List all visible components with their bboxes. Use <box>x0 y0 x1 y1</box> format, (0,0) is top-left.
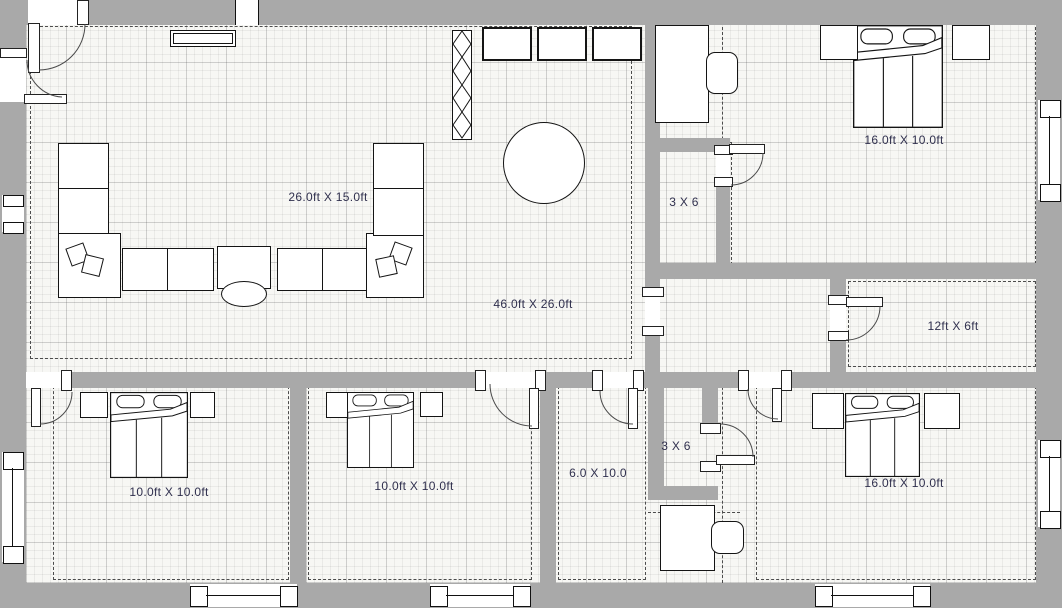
wall-shelf-inner <box>173 33 233 44</box>
door-opening-room-middle <box>597 372 638 388</box>
desk-top-right <box>655 25 709 123</box>
nightstand <box>190 392 215 418</box>
window-glass <box>1049 116 1050 184</box>
door-leaf-entry-top <box>28 23 40 73</box>
sofa-module <box>58 188 109 236</box>
wall-bath-bottom-south <box>648 486 718 500</box>
door-post <box>642 287 664 297</box>
sofa-corner-right <box>366 233 424 298</box>
window-glass <box>831 595 913 596</box>
wall-bath-bottom-east <box>702 388 718 425</box>
cabinet <box>537 27 587 61</box>
bed-bottom-middle <box>347 392 414 468</box>
window-post <box>190 586 208 607</box>
nightstand <box>924 393 960 429</box>
window-post <box>1040 100 1061 118</box>
cabinet <box>592 27 642 61</box>
room-label-bedroom-bl: 10.0ft X 10.0ft <box>129 485 208 499</box>
nightstand <box>952 25 990 60</box>
desk-bottom <box>660 505 715 571</box>
bed-top-right <box>853 25 943 128</box>
window-post <box>3 546 24 564</box>
door-leaf-bath-top <box>729 144 765 154</box>
nightstand <box>420 392 443 417</box>
wall-top <box>0 0 1062 25</box>
sofa-pillow <box>375 255 398 278</box>
door-opening-bath-top <box>716 152 730 180</box>
window-top-wall <box>235 0 259 25</box>
room-label-bedroom-br: 16.0ft X 10.0ft <box>864 476 943 490</box>
room-label-living: 46.0ft X 26.0ft <box>493 297 572 311</box>
door-post <box>738 370 749 391</box>
door-opening-bedroom-bm <box>480 372 540 388</box>
window-post <box>1040 184 1061 202</box>
nightstand <box>820 25 858 60</box>
door-opening-entry-left <box>0 57 26 102</box>
window-glass <box>1049 456 1050 511</box>
bed-bottom-left <box>110 392 188 478</box>
floor-plan: 46.0ft X 26.0ft 26.0ft X 15.0ft 16.0ft X… <box>0 0 1062 608</box>
coffee-table <box>221 281 267 307</box>
door-post <box>0 48 27 58</box>
door-leaf-room-middle <box>628 388 638 429</box>
window-post <box>913 586 931 607</box>
window-post <box>430 586 448 607</box>
window-post <box>1040 511 1061 529</box>
room-label-sofa-area: 26.0ft X 15.0ft <box>288 190 367 204</box>
window-post <box>1040 440 1061 458</box>
sofa-module <box>58 143 109 191</box>
door-post <box>592 370 603 391</box>
window-post <box>3 222 24 234</box>
sofa-corner-left <box>58 233 121 298</box>
window-post <box>280 586 298 607</box>
chair-bottom <box>711 521 744 554</box>
wall-bedrooms-divider-2 <box>540 372 556 583</box>
room-label-room-middle: 6.0 X 10.0 <box>569 466 627 480</box>
door-leaf-entry-left <box>24 94 67 104</box>
room-label-bath-top: 3 X 6 <box>669 195 699 209</box>
door-leaf-bedroom-bm <box>529 388 539 429</box>
door-post <box>642 326 664 336</box>
door-leaf-bath-bottom <box>716 455 755 465</box>
door-opening-room-right <box>830 302 846 333</box>
room-label-bath-bottom: 3 X 6 <box>661 439 691 453</box>
cabinet <box>482 27 532 61</box>
window-glass <box>12 468 13 546</box>
room-label-bedroom-tr: 16.0ft X 10.0ft <box>864 133 943 147</box>
chair-top-right <box>706 52 738 94</box>
round-table <box>503 122 585 204</box>
door-post <box>828 331 849 341</box>
door-post <box>781 370 792 391</box>
door-post <box>77 0 89 25</box>
window-post <box>3 452 24 470</box>
wall-hall-top <box>645 263 1036 279</box>
wall-bath-top-east <box>716 180 730 264</box>
nightstand <box>80 392 108 418</box>
sofa-pillow <box>81 254 104 277</box>
room-label-room-right: 12ft X 6ft <box>927 319 978 333</box>
door-leaf-bedroom-bl <box>31 388 41 427</box>
sofa-module <box>277 248 324 291</box>
sofa-module <box>322 248 369 291</box>
bed-bottom-right <box>845 393 920 477</box>
door-leaf-room-right <box>846 297 883 307</box>
nightstand <box>812 393 844 429</box>
window-glass <box>206 595 280 596</box>
sofa-module <box>122 248 169 291</box>
window-post <box>513 586 531 607</box>
window-post <box>3 195 24 207</box>
door-opening-hall <box>645 293 660 328</box>
sofa-module <box>373 188 424 236</box>
sofa-module <box>373 143 424 191</box>
door-post <box>714 177 733 187</box>
wall-shelf <box>170 30 236 47</box>
door-post <box>61 370 72 391</box>
room-label-bedroom-bm: 10.0ft X 10.0ft <box>374 479 453 493</box>
door-leaf-bedroom-br <box>772 388 782 422</box>
wall-bedrooms-divider-1 <box>290 372 306 583</box>
window-glass <box>446 595 513 596</box>
window-post <box>815 586 833 607</box>
sofa-module <box>167 248 214 291</box>
door-post <box>475 370 486 391</box>
door-post <box>700 423 721 434</box>
